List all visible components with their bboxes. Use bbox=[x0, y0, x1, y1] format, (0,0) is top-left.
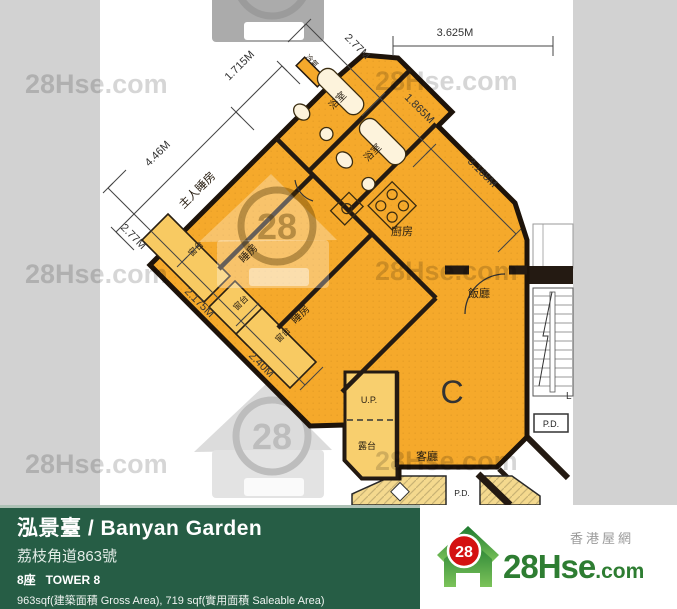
brand-site-part1: 28Hse bbox=[503, 548, 595, 585]
right-gray-column bbox=[573, 0, 677, 505]
footer-info-panel: 泓景臺 / Banyan Garden 荔枝角道863號 8座 TOWER 8 … bbox=[0, 508, 420, 609]
floor-plan-canvas: 28 28 L P.D. bbox=[0, 0, 677, 507]
room-label-utility-platform: U.P. bbox=[361, 395, 377, 405]
brand-site-part2: .com bbox=[595, 560, 644, 583]
watermark-text: 28Hse.com bbox=[375, 66, 518, 96]
brand-site-name: 28Hse.com bbox=[503, 548, 644, 586]
footer-bar: 泓景臺 / Banyan Garden 荔枝角道863號 8座 TOWER 8 … bbox=[0, 505, 677, 609]
estate-address: 荔枝角道863號 bbox=[17, 545, 420, 566]
watermark-text: 28Hse.com bbox=[25, 449, 168, 479]
brand-house-icon: 28 bbox=[434, 521, 502, 595]
pipe-duct-label: P.D. bbox=[543, 419, 559, 429]
watermark-text: 28Hse.com bbox=[375, 446, 518, 476]
dim-top-horizontal: 3.625M bbox=[437, 27, 474, 39]
pipe-duct-label: P.D. bbox=[454, 488, 469, 498]
lift-label: L bbox=[566, 391, 572, 402]
estate-name: 泓景臺 / Banyan Garden bbox=[17, 516, 420, 542]
unit-letter: C bbox=[440, 374, 463, 410]
watermark-house-logo-top: 28 bbox=[194, 0, 332, 42]
brand-block: 香港屋網 28 28Hse.com bbox=[420, 508, 677, 609]
watermark-logo-number: 28 bbox=[252, 0, 292, 1]
watermark-text: 28Hse.com bbox=[375, 256, 518, 286]
watermark-text: 28Hse.com bbox=[25, 69, 168, 99]
floor-plan-page: 28 28 L P.D. bbox=[0, 0, 677, 609]
brand-tagline: 香港屋網 bbox=[570, 528, 634, 547]
room-label-balcony: 露台 bbox=[358, 440, 376, 451]
watermark-logo-number: 28 bbox=[257, 206, 297, 247]
room-label-kitchen: 廚房 bbox=[391, 224, 413, 238]
estate-area: 963sqf(建築面積 Gross Area), 719 sqf(實用面積 Sa… bbox=[17, 592, 420, 608]
room-label-dining: 飯廳 bbox=[468, 286, 490, 300]
watermark-logo-number: 28 bbox=[252, 416, 292, 457]
brand-logo-number: 28 bbox=[455, 544, 473, 561]
watermark-text: 28Hse.com bbox=[25, 259, 168, 289]
estate-tower: 8座 TOWER 8 bbox=[17, 571, 420, 588]
